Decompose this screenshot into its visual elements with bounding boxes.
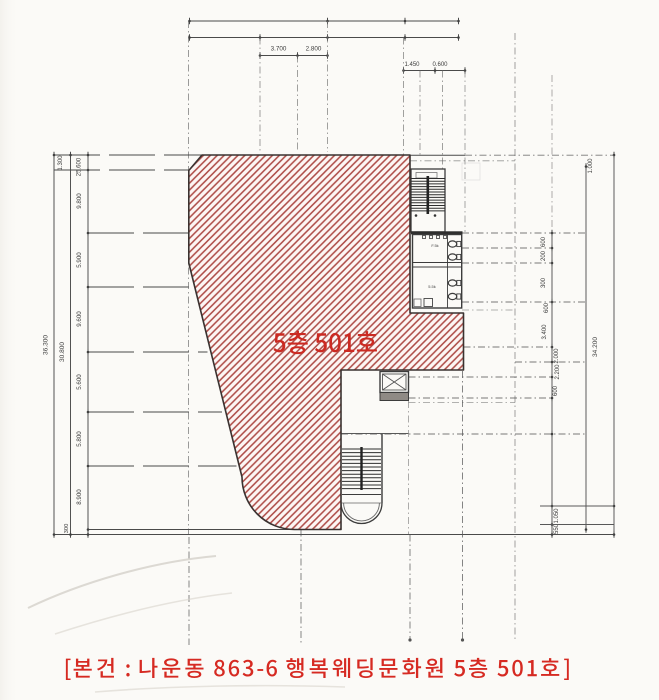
svg-text:F.5k: F.5k [431,243,438,248]
svg-text:200: 200 [541,250,547,261]
svg-text:5.600: 5.600 [76,374,83,390]
svg-text:36.300: 36.300 [43,335,50,355]
svg-text:1.450: 1.450 [404,62,420,68]
svg-text:5.900: 5.900 [76,252,83,268]
svg-text:2.800: 2.800 [306,46,322,53]
svg-text:5.5k: 5.5k [428,284,436,289]
svg-text:1.050: 1.050 [554,508,560,524]
svg-text:2.200: 2.200 [555,364,561,380]
svg-text:600: 600 [541,236,547,247]
svg-text:300: 300 [541,277,547,288]
svg-text:3.700: 3.700 [271,46,287,53]
svg-text:5.800: 5.800 [76,431,83,447]
svg-text:1.000: 1.000 [588,158,594,174]
svg-text:0.600: 0.600 [432,62,448,68]
svg-text:25.600: 25.600 [77,157,83,176]
svg-text:34.200: 34.200 [592,337,599,357]
svg-text:8.900: 8.900 [76,489,83,505]
svg-text:600: 600 [553,385,559,396]
svg-text:9.600: 9.600 [76,311,83,327]
svg-text:1.300: 1.300 [58,155,64,171]
svg-text:600: 600 [544,302,550,313]
svg-text:2.000: 2.000 [554,348,560,364]
svg-text:30.800: 30.800 [59,342,66,362]
svg-text:9.800: 9.800 [76,193,83,209]
svg-text:3.400: 3.400 [542,324,548,340]
svg-text:300: 300 [64,524,70,534]
